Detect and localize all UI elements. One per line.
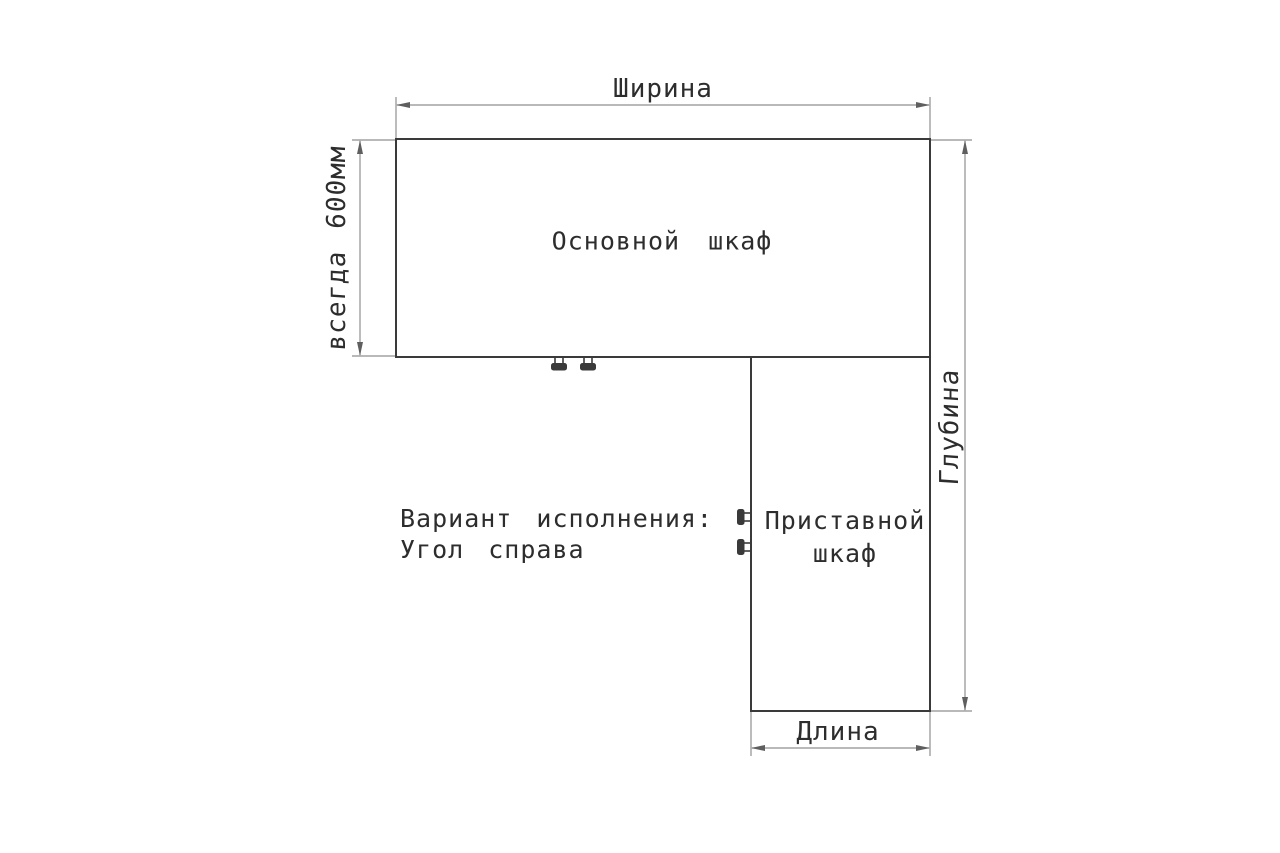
furniture-dimension-diagram: Ширина всегда 600мм Глубина Длина Основн… [0,0,1280,853]
length-dimension-label: Длина [796,717,879,747]
always-600mm-dimension-label: всегда 600мм [322,145,352,352]
attached-cabinet-label-line2: шкаф [765,537,926,570]
arrow-down-icon [357,342,363,356]
depth-dimension-label: Глубина [935,368,965,487]
arrow-right-icon [916,745,930,751]
arrow-up-icon [962,140,968,154]
cam-lock-connector-icon [738,540,751,555]
attached-cabinet-label: Приставной шкаф [765,504,926,570]
attached-cabinet-label-line1: Приставной [765,504,926,537]
variant-annotation-line1: Вариант исполнения: [400,503,713,534]
arrow-left-icon [396,102,410,108]
depth-600-dimension [352,140,395,356]
variant-annotation: Вариант исполнения: Угол справа [400,503,713,565]
cam-lock-connector-icon [552,358,567,370]
arrow-up-icon [357,140,363,154]
arrow-down-icon [962,697,968,711]
arrow-right-icon [916,102,930,108]
width-dimension-label: Ширина [613,74,713,104]
cam-lock-connector-icon [738,510,751,525]
variant-annotation-line2: Угол справа [400,534,713,565]
diagram-drawing-layer [0,0,1280,853]
cam-lock-connector-icon [581,358,596,370]
main-cabinet-label: Основной шкаф [552,227,773,256]
arrow-left-icon [751,745,765,751]
